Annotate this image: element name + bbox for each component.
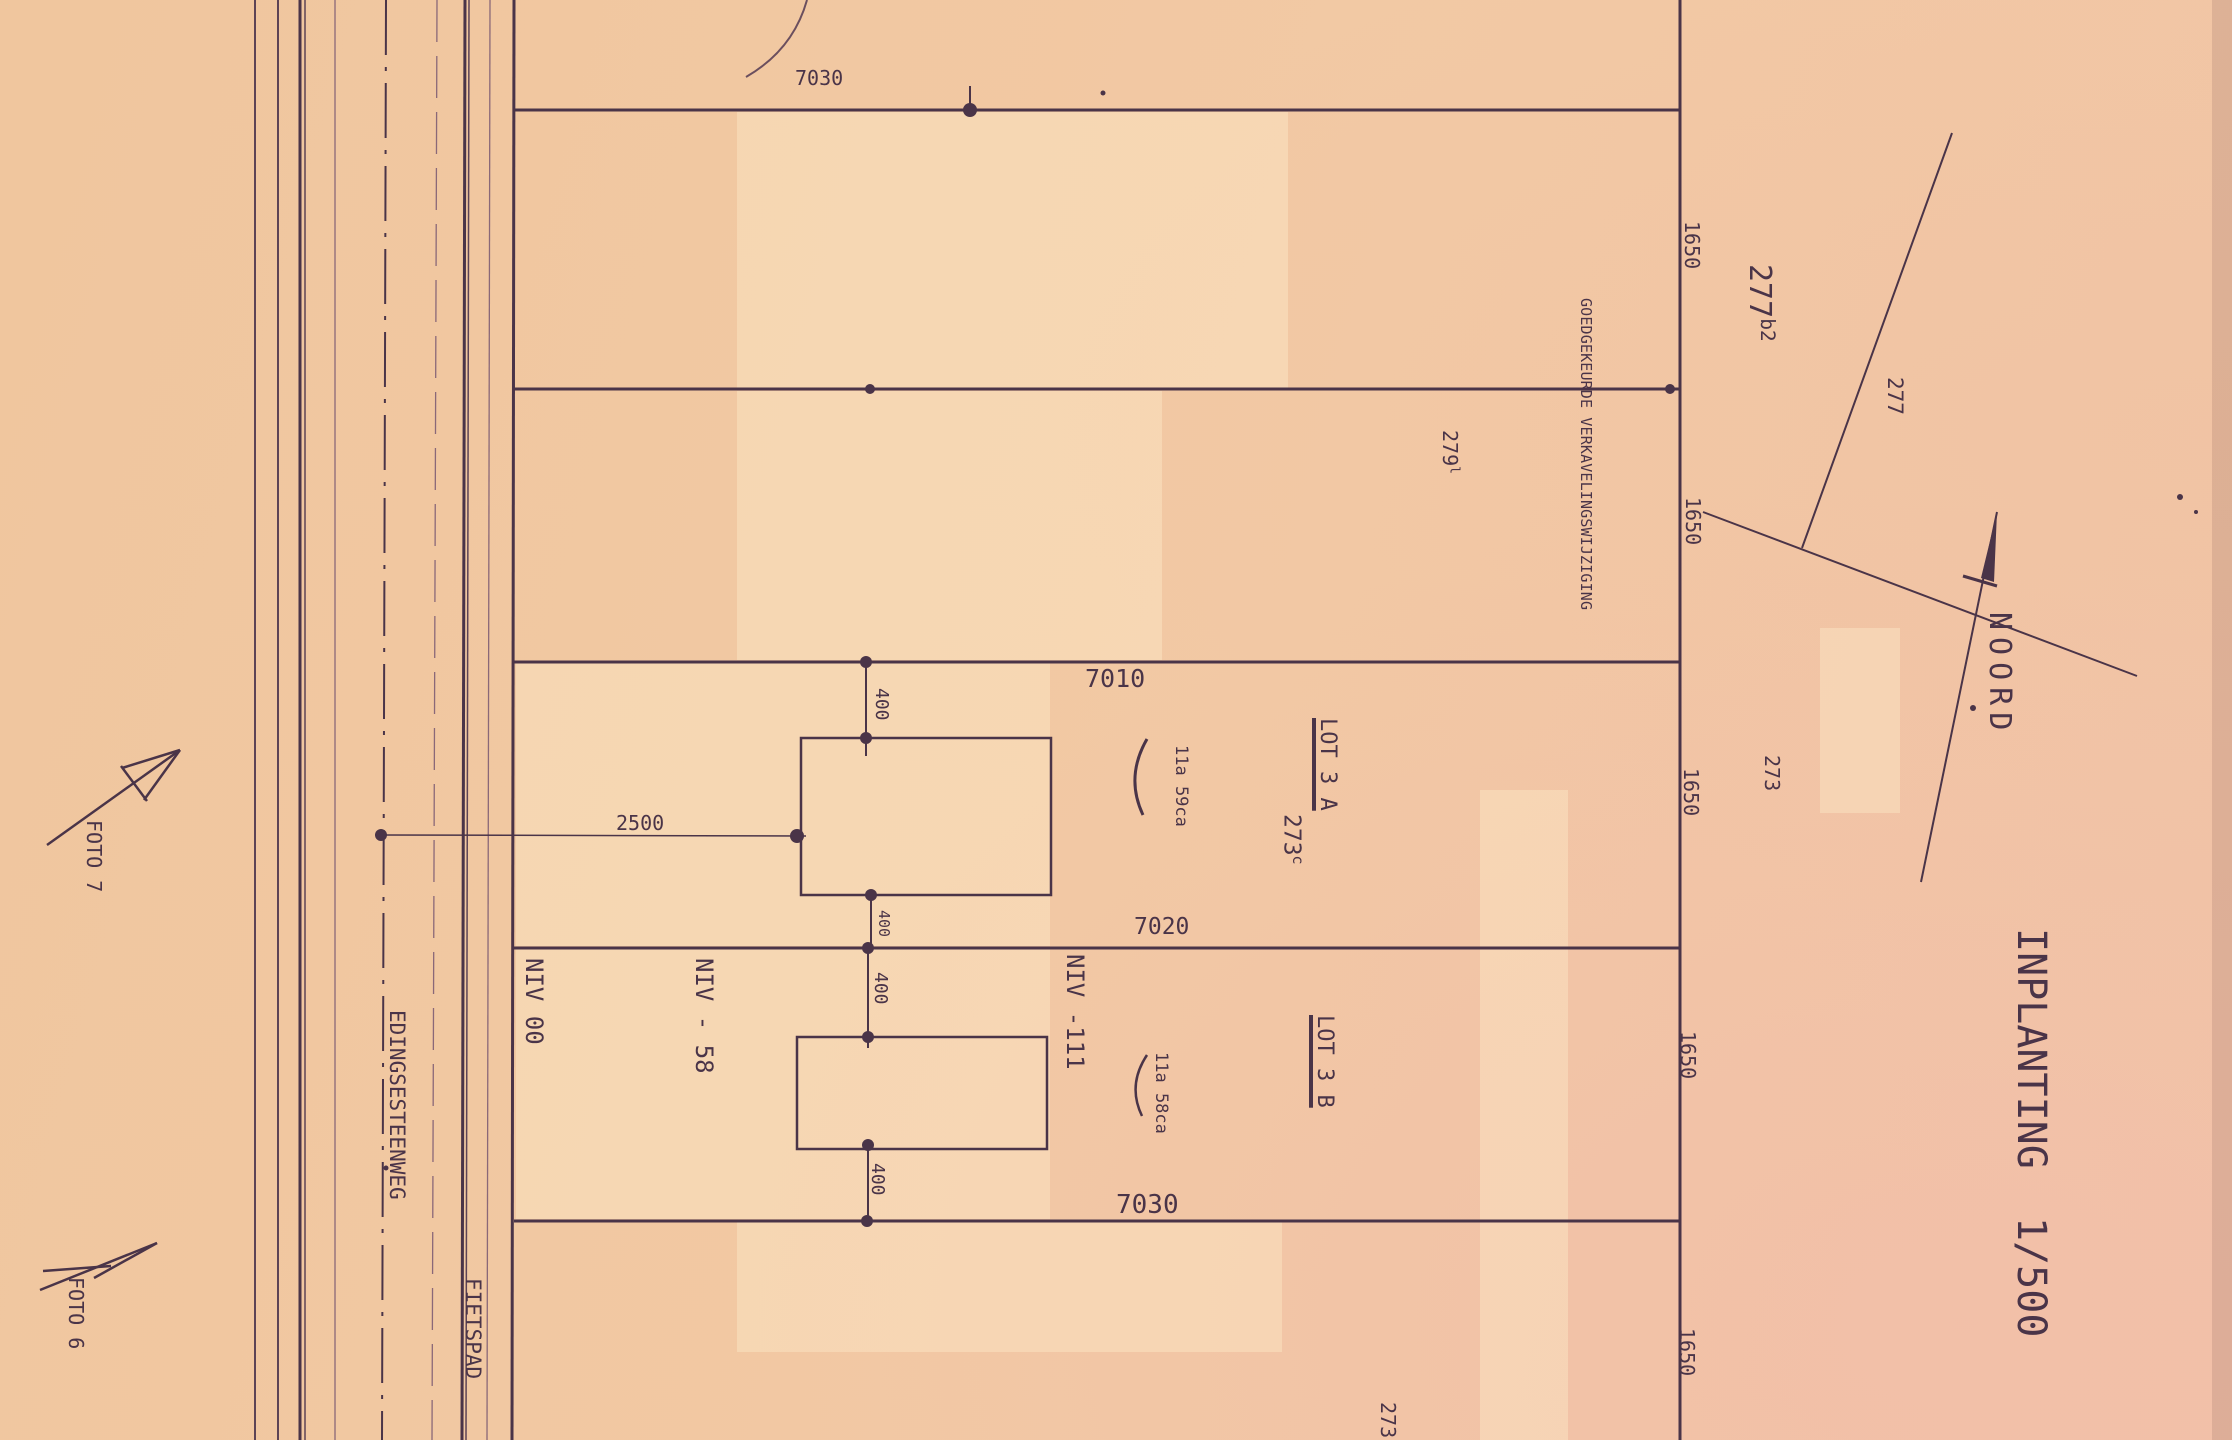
road-line — [487, 0, 490, 1440]
house-outline-lot-b — [797, 1037, 1047, 1149]
parcel-273-south-label: 273 — [1376, 1402, 1400, 1438]
ink-speck — [2177, 494, 2183, 500]
dimension-7020: 7020 — [1134, 914, 1189, 940]
cycle-path-edge-line — [462, 0, 465, 1440]
lot-a-parcel-number: 273c — [1278, 814, 1307, 865]
parcel-277-boundary — [1802, 133, 1952, 548]
level-niv-111: NIV -111 — [1061, 954, 1089, 1070]
dimension-7010: 7010 — [1085, 664, 1145, 693]
survey-dot — [860, 656, 872, 668]
north-label: NOORD — [1982, 612, 2017, 737]
photo-marker-6-label: FOTO 6 — [64, 1277, 88, 1349]
lot-a-label: LOT 3 A — [1315, 718, 1340, 811]
road-offset-dimension-line — [381, 835, 806, 836]
parcel-front-boundary — [512, 0, 514, 1440]
ink-speck — [1101, 91, 1106, 96]
dimension-400: 400 — [875, 910, 893, 937]
approval-note: GOEDGEKEURDE VERKAVELINGSWIJZIGING — [1577, 298, 1595, 610]
parcel-273-boundary — [1703, 512, 2137, 676]
road-line — [432, 0, 437, 1440]
photo-marker-7-label: FOTO 7 — [82, 820, 106, 892]
parcel-279-label: 279l — [1438, 430, 1462, 474]
survey-dot — [790, 829, 804, 843]
parcel-277-label: 277 — [1883, 377, 1907, 415]
north-arrow-head — [1981, 512, 1997, 582]
lot-b-label: LOT 3 B — [1312, 1015, 1337, 1108]
dimension-7030-top: 7030 — [795, 66, 843, 90]
survey-dot — [1665, 384, 1675, 394]
drawing-title: INPLANTING 1/500 — [2008, 928, 2054, 1337]
lot-a-leader-arc — [1135, 739, 1147, 815]
level-niv-58: NIV - 58 — [690, 958, 718, 1074]
lot-a-area-label: 11a 59ca — [1171, 745, 1191, 827]
parcel-suffix: l — [1447, 466, 1462, 474]
ink-speck — [1970, 705, 1976, 711]
lot-b-leader-arc — [1136, 1055, 1147, 1116]
survey-dot — [865, 384, 875, 394]
dimension-1650: 1650 — [1675, 1328, 1699, 1376]
ink-speck — [2194, 510, 2198, 514]
dimension-1650: 1650 — [1681, 497, 1705, 545]
survey-dot — [862, 1031, 874, 1043]
lot-b-area-label: 11a 58ca — [1151, 1052, 1171, 1134]
survey-dot — [861, 1215, 873, 1227]
dimension-400: 400 — [870, 972, 891, 1005]
dimension-7030-bottom: 7030 — [1116, 1190, 1179, 1220]
parcel-suffix: c — [1289, 856, 1307, 865]
dimension-400: 400 — [871, 688, 892, 721]
level-niv-00: NIV 00 — [520, 958, 548, 1045]
cycle-path-label: FIETSPAD — [461, 1278, 485, 1379]
cycle-path-edge-line — [466, 0, 469, 1440]
photo-marker-6-icon — [40, 1243, 157, 1290]
dimension-1650: 1650 — [1680, 221, 1704, 269]
parcel-suffix: b2 — [1756, 318, 1779, 341]
parcel-277b2-label: 277b2 — [1742, 264, 1779, 342]
survey-dot — [963, 103, 977, 117]
dimension-1650: 1650 — [1679, 768, 1703, 816]
dimension-400: 400 — [867, 1163, 888, 1196]
survey-dot — [865, 889, 877, 901]
road-axis-line — [382, 0, 386, 1440]
plan-linework — [0, 0, 2232, 1440]
survey-dot — [862, 942, 874, 954]
dimension-1650: 1650 — [1676, 1031, 1700, 1079]
photo-marker-7-icon — [47, 750, 180, 845]
site-plan-sheet: 7030 7010 7020 7030 2500 1650 1650 1650 … — [0, 0, 2232, 1440]
street-name-label: EDINGSESTEENWEG — [385, 1010, 409, 1200]
survey-dot — [862, 1139, 874, 1151]
parcel-273-east-label: 273 — [1760, 755, 1784, 791]
survey-dot — [375, 829, 387, 841]
survey-dot — [860, 732, 872, 744]
dimension-2500: 2500 — [616, 811, 664, 835]
house-outline-lot-a — [801, 738, 1051, 895]
